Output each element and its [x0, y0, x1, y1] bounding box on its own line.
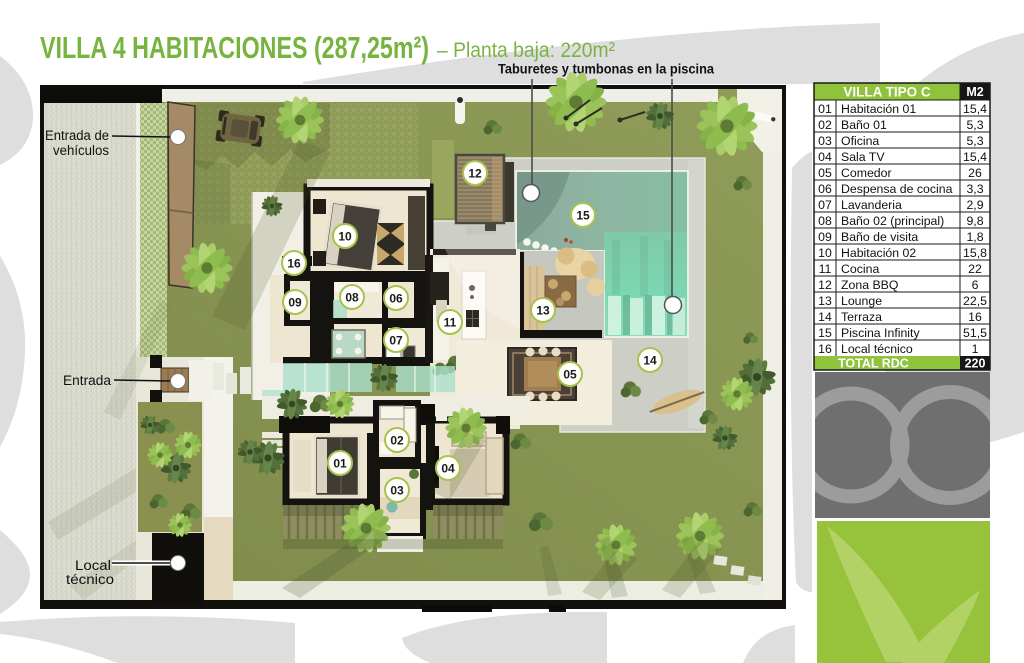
svg-text:15,8: 15,8	[963, 246, 987, 260]
svg-text:Habitación 01: Habitación 01	[841, 102, 916, 116]
svg-text:Local técnico: Local técnico	[841, 342, 913, 356]
svg-text:Piscina Infinity: Piscina Infinity	[841, 326, 920, 340]
svg-text:12: 12	[818, 278, 832, 292]
svg-text:22: 22	[968, 262, 982, 276]
svg-text:07: 07	[389, 334, 403, 348]
svg-text:09: 09	[288, 296, 302, 310]
svg-text:15,4: 15,4	[963, 102, 987, 116]
svg-text:01: 01	[818, 102, 832, 116]
svg-text:TOTAL RDC: TOTAL RDC	[838, 357, 909, 371]
svg-text:14: 14	[643, 354, 657, 368]
svg-text:12: 12	[468, 167, 482, 181]
svg-text:Oficina: Oficina	[841, 134, 879, 148]
svg-text:09: 09	[818, 230, 832, 244]
svg-text:16: 16	[968, 310, 982, 324]
svg-text:16: 16	[818, 342, 832, 356]
svg-text:05: 05	[818, 166, 832, 180]
svg-text:220: 220	[965, 357, 986, 371]
svg-text:04: 04	[441, 462, 455, 476]
svg-text:5,3: 5,3	[966, 134, 983, 148]
svg-text:02: 02	[390, 434, 404, 448]
svg-text:07: 07	[818, 198, 832, 212]
svg-text:Baño 02 (principal): Baño 02 (principal)	[841, 214, 944, 228]
svg-text:04: 04	[818, 150, 832, 164]
svg-text:Local: Local	[75, 558, 111, 573]
svg-text:1,8: 1,8	[966, 230, 983, 244]
svg-text:Terraza: Terraza	[841, 310, 882, 324]
svg-text:Lounge: Lounge	[841, 294, 882, 308]
svg-text:13: 13	[818, 294, 832, 308]
svg-text:16: 16	[287, 257, 301, 271]
svg-text:Habitación 02: Habitación 02	[841, 246, 916, 260]
svg-text:05: 05	[563, 368, 577, 382]
svg-text:03: 03	[818, 134, 832, 148]
svg-text:Baño de visita: Baño de visita	[841, 230, 918, 244]
svg-text:Taburetes y tumbonas en la pis: Taburetes y tumbonas en la piscina	[498, 62, 714, 77]
svg-text:10: 10	[338, 230, 352, 244]
svg-text:2,9: 2,9	[966, 198, 983, 212]
svg-text:Entrada de: Entrada de	[45, 128, 109, 143]
svg-text:15: 15	[576, 209, 590, 223]
svg-text:15: 15	[818, 326, 832, 340]
svg-text:14: 14	[818, 310, 832, 324]
svg-text:Zona BBQ: Zona BBQ	[841, 278, 898, 292]
svg-text:08: 08	[345, 291, 359, 305]
svg-text:– Planta baja: 220m²: – Planta baja: 220m²	[437, 39, 615, 62]
svg-text:Despensa de cocina: Despensa de cocina	[841, 182, 953, 196]
svg-text:M2: M2	[966, 85, 983, 99]
svg-text:Baño 01: Baño 01	[841, 118, 887, 132]
svg-text:Cocina: Cocina	[841, 262, 879, 276]
svg-text:08: 08	[818, 214, 832, 228]
svg-text:VILLA TIPO C: VILLA TIPO C	[843, 85, 930, 100]
svg-text:Lavanderia: Lavanderia	[841, 198, 902, 212]
svg-text:11: 11	[444, 316, 457, 330]
svg-text:vehículos: vehículos	[53, 143, 109, 158]
svg-text:06: 06	[818, 182, 832, 196]
svg-text:10: 10	[818, 246, 832, 260]
svg-text:26: 26	[968, 166, 982, 180]
svg-text:Comedor: Comedor	[841, 166, 892, 180]
svg-text:02: 02	[818, 118, 832, 132]
svg-text:Entrada: Entrada	[63, 373, 111, 388]
svg-text:5,3: 5,3	[966, 118, 983, 132]
svg-text:6: 6	[972, 278, 979, 292]
svg-text:13: 13	[536, 304, 550, 318]
svg-text:51,5: 51,5	[963, 326, 987, 340]
svg-text:VILLA 4 HABITACIONES (287,25m²: VILLA 4 HABITACIONES (287,25m²)	[40, 30, 429, 65]
svg-text:11: 11	[819, 262, 832, 276]
svg-text:Sala TV: Sala TV	[841, 150, 885, 164]
svg-text:3,3: 3,3	[966, 182, 983, 196]
svg-text:9,8: 9,8	[966, 214, 983, 228]
svg-text:1: 1	[972, 342, 979, 356]
svg-text:01: 01	[333, 457, 347, 471]
svg-text:técnico: técnico	[66, 572, 114, 587]
svg-text:03: 03	[390, 484, 404, 498]
svg-text:22,5: 22,5	[963, 294, 987, 308]
svg-text:15,4: 15,4	[963, 150, 987, 164]
svg-text:06: 06	[389, 292, 403, 306]
